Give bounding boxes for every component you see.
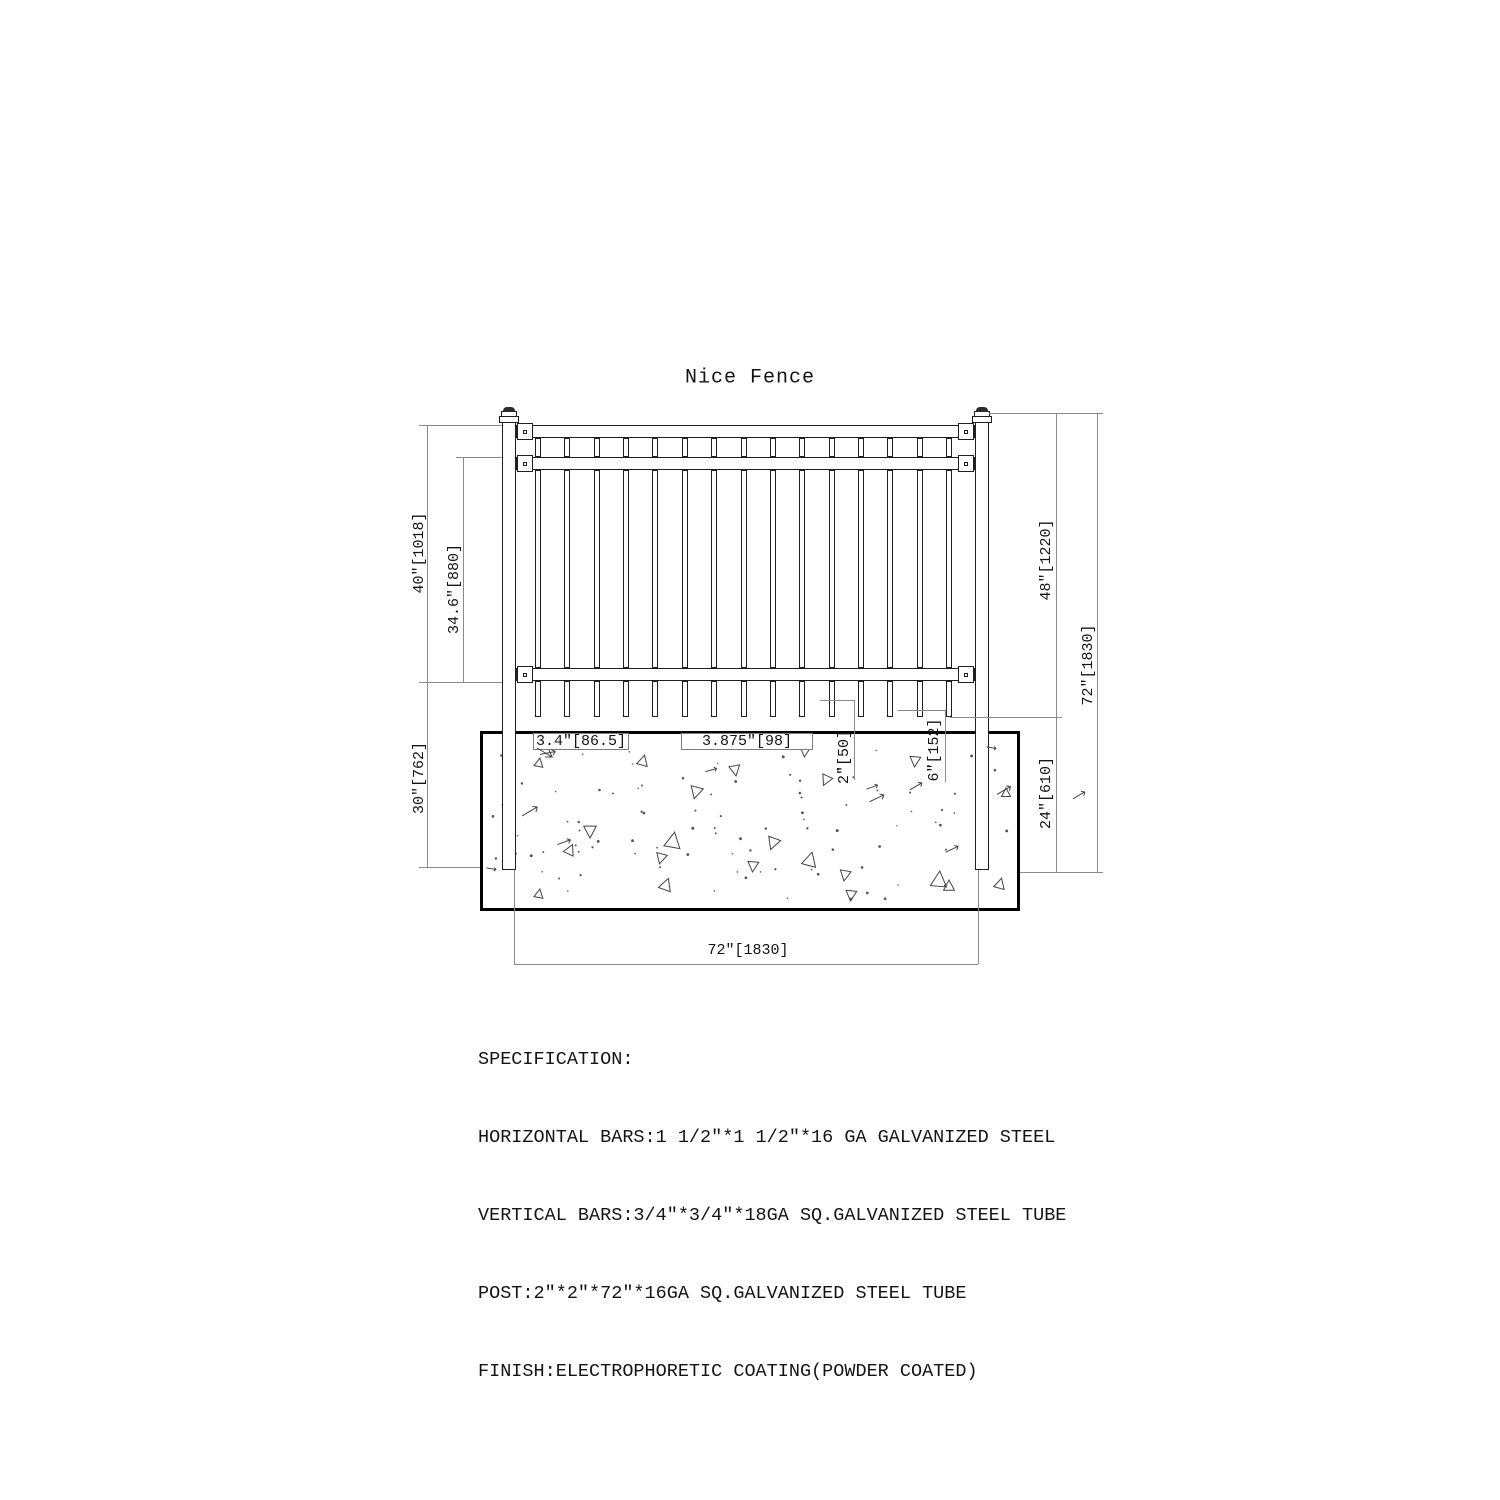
fence-post-right xyxy=(975,422,989,870)
vertical-bar-lower xyxy=(887,681,893,717)
post-cap-base-right xyxy=(972,416,992,423)
dim-picket-drop: 6″[152] xyxy=(927,718,943,781)
vertical-bar-upper xyxy=(858,438,864,457)
vertical-bar-upper xyxy=(946,438,952,457)
vertical-bar-upper xyxy=(535,438,541,457)
dim-height-40: 40″[1018] xyxy=(412,512,428,593)
vertical-bar-lower xyxy=(711,681,717,717)
post-bottom-line-right xyxy=(975,869,989,870)
dim-bar-pitch-box: 3.875″[98] xyxy=(681,733,813,750)
vertical-bar-main xyxy=(946,470,952,668)
dim-height-72: 72″[1830] xyxy=(1081,624,1097,705)
dim-edge-gap: 2″[50] xyxy=(837,730,853,784)
rail-top xyxy=(516,425,975,438)
dim-line-ext-bottom-left xyxy=(514,870,515,964)
dim-bar-gap-label: 3.4″[86.5] xyxy=(536,733,626,750)
post-bottom-line-left xyxy=(502,869,516,870)
vertical-bar-lower xyxy=(623,681,629,717)
bracket-screw-hole xyxy=(523,673,527,677)
vertical-bar-main xyxy=(887,470,893,668)
dim-line-dimline-picket-drop-v xyxy=(945,710,946,782)
dim-line-dimline-72-bottom xyxy=(514,964,978,965)
rail-bottom xyxy=(516,668,975,681)
rail-bracket-right-middle xyxy=(958,455,974,472)
post-cap-dome-right xyxy=(976,407,988,412)
dim-depth-30: 30″[762] xyxy=(412,742,428,814)
post-cap-base-left xyxy=(499,416,519,423)
vertical-bar-main xyxy=(799,470,805,668)
dim-line-dimline-72-right xyxy=(1097,413,1098,872)
vertical-bar-lower xyxy=(799,681,805,717)
fence-post-left xyxy=(502,422,516,870)
dim-line-dimline-34-6 xyxy=(463,457,464,682)
rail-bracket-left-bottom xyxy=(517,666,533,683)
vertical-bar-lower xyxy=(858,681,864,717)
dim-line-dimline-picket-drop-h xyxy=(898,710,945,711)
rail-bracket-right-top xyxy=(958,423,974,440)
dim-height-34-6: 34.6″[880] xyxy=(447,544,463,634)
vertical-bar-main xyxy=(711,470,717,668)
vertical-bar-lower xyxy=(594,681,600,717)
vertical-bar-upper xyxy=(623,438,629,457)
vertical-bar-upper xyxy=(770,438,776,457)
dim-depth-24: 24″[610] xyxy=(1039,757,1055,829)
dim-height-48: 48″[1220] xyxy=(1039,519,1055,600)
dim-line-dimline-edge-gap-v xyxy=(854,700,855,780)
vertical-bar-main xyxy=(858,470,864,668)
dim-line-dimline-48-24 xyxy=(1056,413,1057,872)
vertical-bar-upper xyxy=(887,438,893,457)
dim-line-ext-postbottom-right xyxy=(1020,872,1103,873)
spec-line-post: POST:2″*2″*72″*16GA SQ.GALVANIZED STEEL … xyxy=(478,1281,1066,1307)
dim-line-ext-ground-right xyxy=(950,717,1062,718)
rail-bracket-left-middle xyxy=(517,455,533,472)
bracket-screw-hole xyxy=(964,673,968,677)
dim-line-ext-top-right xyxy=(989,413,1103,414)
vertical-bar-main xyxy=(741,470,747,668)
dim-width-72: 72″[1830] xyxy=(707,943,788,959)
bracket-screw-hole xyxy=(964,462,968,466)
vertical-bar-upper xyxy=(594,438,600,457)
dim-bar-gap-box: 3.4″[86.5] xyxy=(533,733,629,750)
dim-line-dimline-40-30 xyxy=(427,425,428,867)
vertical-bar-upper xyxy=(741,438,747,457)
vertical-bar-lower xyxy=(535,681,541,717)
vertical-bar-lower xyxy=(564,681,570,717)
dim-line-ext-top-left xyxy=(419,425,502,426)
rail-middle xyxy=(516,457,975,470)
vertical-bar-upper xyxy=(652,438,658,457)
vertical-bar-upper xyxy=(564,438,570,457)
rail-bracket-left-top xyxy=(517,423,533,440)
vertical-bar-upper xyxy=(917,438,923,457)
vertical-bar-lower xyxy=(652,681,658,717)
specification-heading: SPECIFICATION: xyxy=(478,1047,1066,1073)
dim-line-ext-postbottom-left xyxy=(419,867,480,868)
vertical-bar-main xyxy=(652,470,658,668)
vertical-bar-main xyxy=(917,470,923,668)
post-cap-dome-left xyxy=(503,407,515,412)
vertical-bar-lower xyxy=(946,681,952,717)
dim-line-dimline-edge-gap-h xyxy=(820,700,854,701)
dim-bar-pitch-label: 3.875″[98] xyxy=(702,733,792,750)
vertical-bar-upper xyxy=(829,438,835,457)
dim-line-ext-ground-left xyxy=(419,682,502,683)
bracket-screw-hole xyxy=(523,462,527,466)
vertical-bar-upper xyxy=(799,438,805,457)
spec-line-horizontal-bars: HORIZONTAL BARS:1 1/2″*1 1/2″*16 GA GALV… xyxy=(478,1125,1066,1151)
bracket-screw-hole xyxy=(964,430,968,434)
vertical-bar-main xyxy=(564,470,570,668)
vertical-bar-main xyxy=(623,470,629,668)
vertical-bar-main xyxy=(594,470,600,668)
spec-line-finish: FINISH:ELECTROPHORETIC COATING(POWDER CO… xyxy=(478,1359,1066,1385)
drawing-title: Nice Fence xyxy=(685,367,815,390)
vertical-bar-lower xyxy=(741,681,747,717)
vertical-bar-lower xyxy=(770,681,776,717)
rail-bracket-right-bottom xyxy=(958,666,974,683)
drawing-sheet: 3.4″[86.5] 3.875″[98] 40″[1018] 34.6″[88… xyxy=(0,0,1500,1500)
specification-block: SPECIFICATION: HORIZONTAL BARS:1 1/2″*1 … xyxy=(478,995,1066,1437)
vertical-bar-main xyxy=(770,470,776,668)
vertical-bar-main xyxy=(829,470,835,668)
vertical-bar-upper xyxy=(682,438,688,457)
vertical-bar-upper xyxy=(711,438,717,457)
vertical-bar-lower xyxy=(682,681,688,717)
vertical-bar-lower xyxy=(917,681,923,717)
bracket-screw-hole xyxy=(523,430,527,434)
spec-line-vertical-bars: VERTICAL BARS:3/4″*3/4″*18GA SQ.GALVANIZ… xyxy=(478,1203,1066,1229)
vertical-bar-main xyxy=(535,470,541,668)
vertical-bar-main xyxy=(682,470,688,668)
dim-line-ext-bottom-right xyxy=(978,870,979,964)
vertical-bar-lower xyxy=(829,681,835,717)
